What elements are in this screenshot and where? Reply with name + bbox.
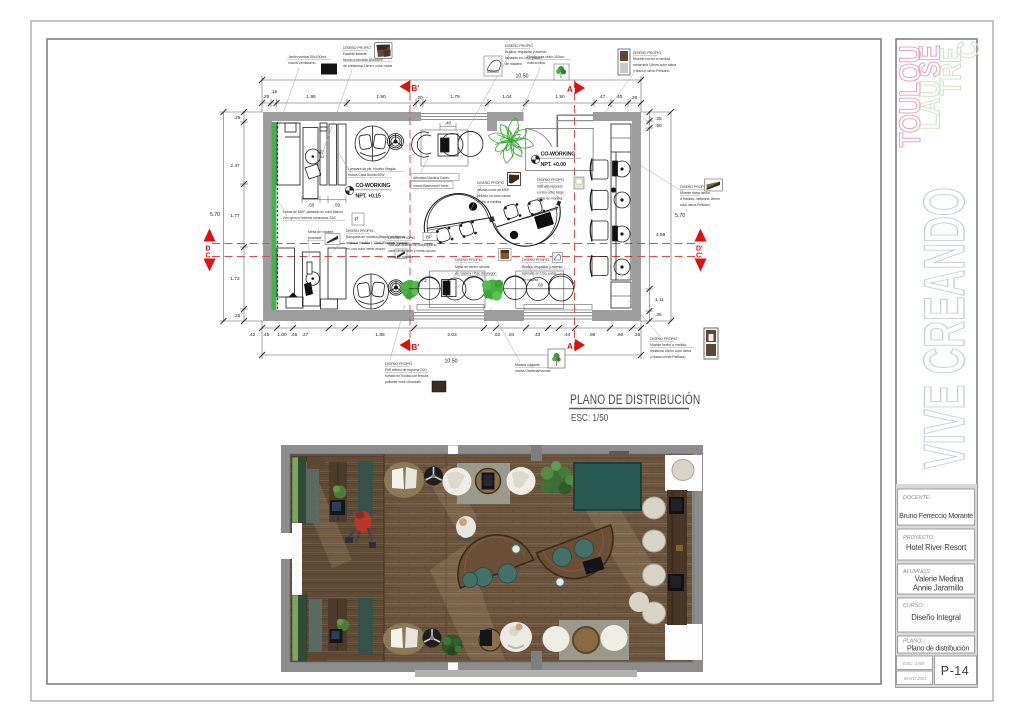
svg-text:1.11: 1.11 bbox=[655, 297, 664, 303]
svg-text:DISEÑO PROPIO: DISEÑO PROPIO bbox=[388, 235, 416, 240]
svg-text:en Lino color verde oscuro: en Lino color verde oscuro bbox=[346, 247, 385, 251]
svg-text:DISEÑO PROPIO: DISEÑO PROPIO bbox=[505, 43, 533, 48]
svg-text:ESC: 1/50: ESC: 1/50 bbox=[571, 412, 608, 423]
svg-text:Puff relleno de espuma D20: Puff relleno de espuma D20 bbox=[385, 368, 426, 372]
svg-text:Diseño Integral: Diseño Integral bbox=[911, 613, 961, 622]
svg-text:DISEÑO PROPIO: DISEÑO PROPIO bbox=[477, 180, 505, 185]
svg-text:.25: .25 bbox=[655, 116, 662, 122]
svg-text:2.03: 2.03 bbox=[447, 332, 457, 338]
svg-text:.72: .72 bbox=[420, 278, 427, 283]
svg-text:CURSO:: CURSO: bbox=[903, 603, 924, 609]
svg-text:Lampara de pie, modelo Magda: Lampara de pie, modelo Magda bbox=[348, 167, 396, 171]
svg-text:de madera: de madera bbox=[522, 278, 538, 282]
svg-text:.45: .45 bbox=[291, 332, 298, 338]
svg-text:10.50: 10.50 bbox=[516, 74, 529, 80]
svg-text:DISEÑO PROPIO: DISEÑO PROPIO bbox=[385, 361, 413, 366]
svg-text:C: C bbox=[206, 253, 211, 260]
svg-text:poliester color chocolate: poliester color chocolate bbox=[385, 380, 421, 384]
svg-text:en lino color beige,: en lino color beige, bbox=[537, 191, 565, 195]
svg-text:DISEÑO PROPIO: DISEÑO PROPIO bbox=[522, 257, 550, 262]
svg-text:Silla alta asiento de poliprop: Silla alta asiento de polipropileno bbox=[388, 243, 436, 247]
svg-text:.52: .52 bbox=[494, 332, 501, 338]
svg-text:ESC: 1/50: ESC: 1/50 bbox=[903, 661, 924, 666]
svg-text:10.50: 10.50 bbox=[445, 359, 458, 365]
svg-text:pintado en color cacao: pintado en color cacao bbox=[477, 194, 511, 198]
svg-text:Plano de distribución: Plano de distribución bbox=[907, 644, 970, 653]
svg-text:DISEÑO PROPIO: DISEÑO PROPIO bbox=[346, 228, 374, 233]
svg-text:de melamina 18mm, color moka: de melamina 18mm, color moka bbox=[343, 64, 393, 68]
svg-text:marca Casa Bonita 60W: marca Casa Bonita 60W bbox=[348, 173, 385, 177]
svg-text:P-14: P-14 bbox=[941, 664, 969, 678]
svg-text:patas de madera.: patas de madera. bbox=[537, 197, 563, 201]
svg-text:.25: .25 bbox=[234, 115, 241, 121]
svg-text:C': C' bbox=[696, 253, 703, 260]
svg-text:y blanco nieve-Pelíkano: y blanco nieve-Pelíkano bbox=[633, 69, 669, 73]
svg-text:.44: .44 bbox=[564, 332, 571, 338]
svg-text:.50: .50 bbox=[308, 203, 315, 208]
svg-text:hecho a medida: hecho a medida bbox=[477, 200, 501, 204]
svg-text:.25: .25 bbox=[655, 312, 662, 318]
svg-text:Butaca, respaldar y asiento: Butaca, respaldar y asiento bbox=[522, 265, 562, 269]
svg-text:.50: .50 bbox=[334, 203, 341, 208]
svg-text:color verde hade y verde oscur: color verde hade y verde oscuro bbox=[388, 249, 436, 253]
svg-text:.40: .40 bbox=[616, 94, 623, 100]
svg-text:tapizado en Lino, patas: tapizado en Lino, patas bbox=[522, 272, 557, 276]
svg-text:MAYO 2021: MAYO 2021 bbox=[904, 676, 927, 681]
svg-text:5.70: 5.70 bbox=[675, 213, 685, 219]
svg-text:DISEÑO PROPIO: DISEÑO PROPIO bbox=[343, 45, 371, 50]
svg-text:marca Verdissimo: marca Verdissimo bbox=[288, 61, 315, 65]
svg-text:Mesa de centro circular: Mesa de centro circular bbox=[455, 265, 491, 269]
svg-text:1.00: 1.00 bbox=[277, 332, 287, 338]
svg-text:y blanco nieve-Pelíkano: y blanco nieve-Pelíkano bbox=[650, 355, 686, 359]
svg-text:2cm grosor, letreros luminosos: 2cm grosor, letreros luminosos SAC bbox=[283, 216, 337, 220]
svg-text:.26: .26 bbox=[634, 332, 641, 338]
svg-text:2.47: 2.47 bbox=[230, 163, 240, 169]
svg-text:melanina 18mm color siena: melanina 18mm color siena bbox=[650, 349, 691, 353]
svg-text:a medida, melanina 18mm: a medida, melanina 18mm bbox=[680, 197, 720, 201]
svg-text:.60: .60 bbox=[537, 283, 544, 288]
svg-text:Mueble barra hecho: Mueble barra hecho bbox=[680, 191, 710, 195]
svg-text:.42: .42 bbox=[249, 332, 256, 338]
svg-text:.27: .27 bbox=[302, 332, 309, 338]
svg-text:Mueble hecho a medida,: Mueble hecho a medida, bbox=[650, 343, 687, 347]
svg-text:.60: .60 bbox=[617, 332, 624, 338]
svg-text:1.90: 1.90 bbox=[555, 94, 565, 100]
svg-text:4.59: 4.59 bbox=[656, 232, 666, 238]
svg-text:patas de madera: patas de madera bbox=[388, 255, 413, 259]
svg-text:.47: .47 bbox=[599, 94, 606, 100]
svg-text:A: A bbox=[567, 85, 573, 94]
svg-text:DOCENTE:: DOCENTE: bbox=[903, 495, 931, 501]
svg-text:PLANO DE DISTRIBUCIÓN: PLANO DE DISTRIBUCIÓN bbox=[570, 390, 700, 407]
svg-text:melamina 18mm color siena: melamina 18mm color siena bbox=[633, 63, 677, 67]
svg-text:Planta hoja violín 100cm: Planta hoja violín 100cm bbox=[527, 55, 564, 59]
svg-text:DISEÑO PROPIO: DISEÑO PROPIO bbox=[633, 50, 661, 55]
svg-text:.50: .50 bbox=[655, 123, 662, 129]
svg-text:DISEÑO PROPIO: DISEÑO PROPIO bbox=[455, 257, 483, 262]
svg-text:Bruno Ferreccio Morante: Bruno Ferreccio Morante bbox=[899, 511, 973, 520]
svg-text:.40: .40 bbox=[445, 121, 452, 126]
svg-text:D: D bbox=[206, 246, 211, 253]
svg-text:.84: .84 bbox=[508, 332, 515, 338]
svg-text:1.90: 1.90 bbox=[376, 94, 386, 100]
svg-text:reciclada: reciclada bbox=[308, 236, 321, 240]
svg-text:.15: .15 bbox=[271, 89, 278, 95]
svg-text:color siena,Pelíkano: color siena,Pelíkano bbox=[680, 203, 710, 207]
svg-text:marca Basement Home: marca Basement Home bbox=[413, 184, 449, 188]
svg-text:.25: .25 bbox=[263, 94, 270, 100]
svg-text:Silla alta tapizado: Silla alta tapizado bbox=[537, 185, 563, 189]
svg-text:.25: .25 bbox=[234, 313, 241, 319]
svg-text:Mueble hecho a medida,: Mueble hecho a medida, bbox=[633, 57, 671, 61]
svg-text:VIVE CREANDO: VIVE CREANDO bbox=[913, 187, 977, 469]
svg-text:DISEÑO PROPIO: DISEÑO PROPIO bbox=[537, 177, 565, 182]
svg-text:Hotel River Resort: Hotel River Resort bbox=[906, 543, 967, 552]
svg-text:NPT. +0.00: NPT. +0.00 bbox=[541, 162, 567, 168]
svg-text:Alfombra Nórdica Calvin,: Alfombra Nórdica Calvin, bbox=[413, 176, 450, 180]
svg-text:PROYECTO:: PROYECTO: bbox=[903, 535, 935, 541]
svg-text:Valerie Medina: Valerie Medina bbox=[915, 575, 964, 584]
svg-text:BP: BP bbox=[426, 235, 432, 240]
svg-text:A: A bbox=[567, 342, 573, 351]
svg-text:DISEÑO PROPIO: DISEÑO PROPIO bbox=[650, 336, 678, 341]
svg-text:Letras de MDF, pintando en col: Letras de MDF, pintando en color blanco bbox=[283, 210, 343, 214]
svg-text:.20: .20 bbox=[416, 95, 423, 101]
svg-text:Jardín vertical 50x100cm,: Jardín vertical 50x100cm, bbox=[288, 55, 327, 59]
svg-text:5.70: 5.70 bbox=[210, 212, 220, 218]
svg-text:1.79: 1.79 bbox=[450, 94, 460, 100]
svg-text:D': D' bbox=[696, 246, 703, 253]
svg-text:1.04: 1.04 bbox=[502, 94, 512, 100]
svg-text:Butaca, respaldar y asiento: Butaca, respaldar y asiento bbox=[505, 50, 547, 54]
svg-text:celosia curve de MDF,: celosia curve de MDF, bbox=[477, 188, 510, 192]
svg-text:marca Gardenamazone: marca Gardenamazone bbox=[515, 369, 551, 373]
svg-text:CO-WORKING: CO-WORKING bbox=[541, 152, 576, 158]
svg-text:NPT. +0.15: NPT. +0.15 bbox=[356, 194, 382, 200]
svg-text:1.95: 1.95 bbox=[306, 94, 316, 100]
svg-text:Estante flotante: Estante flotante bbox=[343, 52, 367, 56]
svg-text:Maceta colgante,: Maceta colgante, bbox=[515, 363, 541, 367]
svg-text:1.88: 1.88 bbox=[375, 332, 385, 338]
svg-text:forrado en Scuba con textura: forrado en Scuba con textura bbox=[385, 374, 428, 378]
svg-text:.43: .43 bbox=[534, 332, 541, 338]
svg-text:Annie Jaramillo: Annie Jaramillo bbox=[913, 584, 964, 593]
svg-text:marca Mica: marca Mica bbox=[527, 61, 546, 65]
svg-text:DISEÑO PROPIO: DISEÑO PROPIO bbox=[680, 184, 708, 189]
svg-text:1.77: 1.77 bbox=[230, 213, 240, 219]
svg-text:.98: .98 bbox=[589, 332, 596, 338]
svg-text:B': B' bbox=[412, 84, 420, 93]
svg-text:CO-WORKING: CO-WORKING bbox=[356, 183, 391, 189]
svg-text:B': B' bbox=[412, 343, 420, 352]
svg-text:C: C bbox=[951, 41, 985, 58]
svg-text:de madera: de madera bbox=[505, 62, 523, 66]
svg-text:.45: .45 bbox=[263, 332, 270, 338]
svg-text:de madera / Piso de oregon: de madera / Piso de oregon bbox=[455, 272, 496, 276]
svg-text:1.72: 1.72 bbox=[230, 276, 240, 282]
svg-text:.26: .26 bbox=[631, 95, 638, 101]
